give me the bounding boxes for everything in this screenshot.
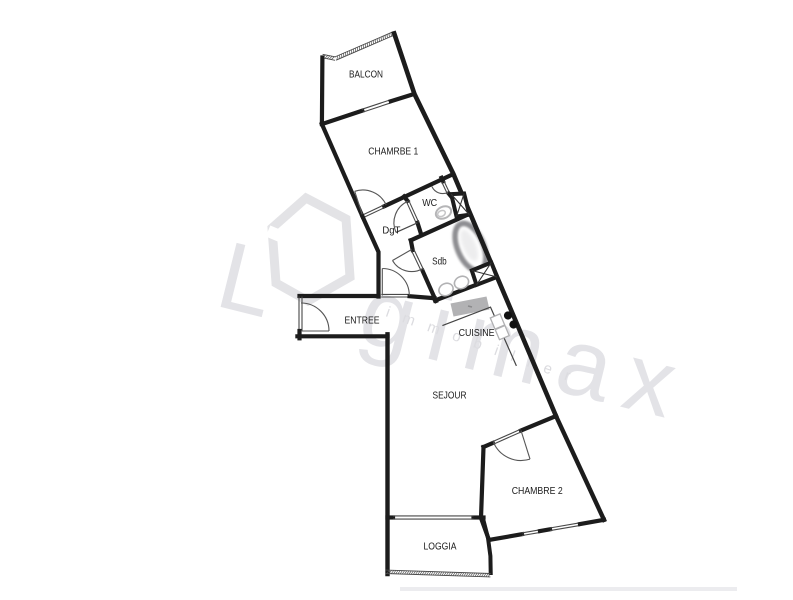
svg-text:LOGGIA: LOGGIA <box>424 540 457 552</box>
svg-text:CUISINE: CUISINE <box>459 327 495 339</box>
svg-text:DgT: DgT <box>382 224 401 236</box>
svg-text:Sdb: Sdb <box>432 255 447 267</box>
svg-text:CHAMRBE 1: CHAMRBE 1 <box>368 145 418 157</box>
svg-text:ENTREE: ENTREE <box>345 314 380 326</box>
svg-text:BALCON: BALCON <box>349 68 383 80</box>
svg-text:CHAMBRE 2: CHAMBRE 2 <box>512 485 563 497</box>
svg-text:WC: WC <box>422 197 437 209</box>
svg-text:SEJOUR: SEJOUR <box>433 389 467 401</box>
